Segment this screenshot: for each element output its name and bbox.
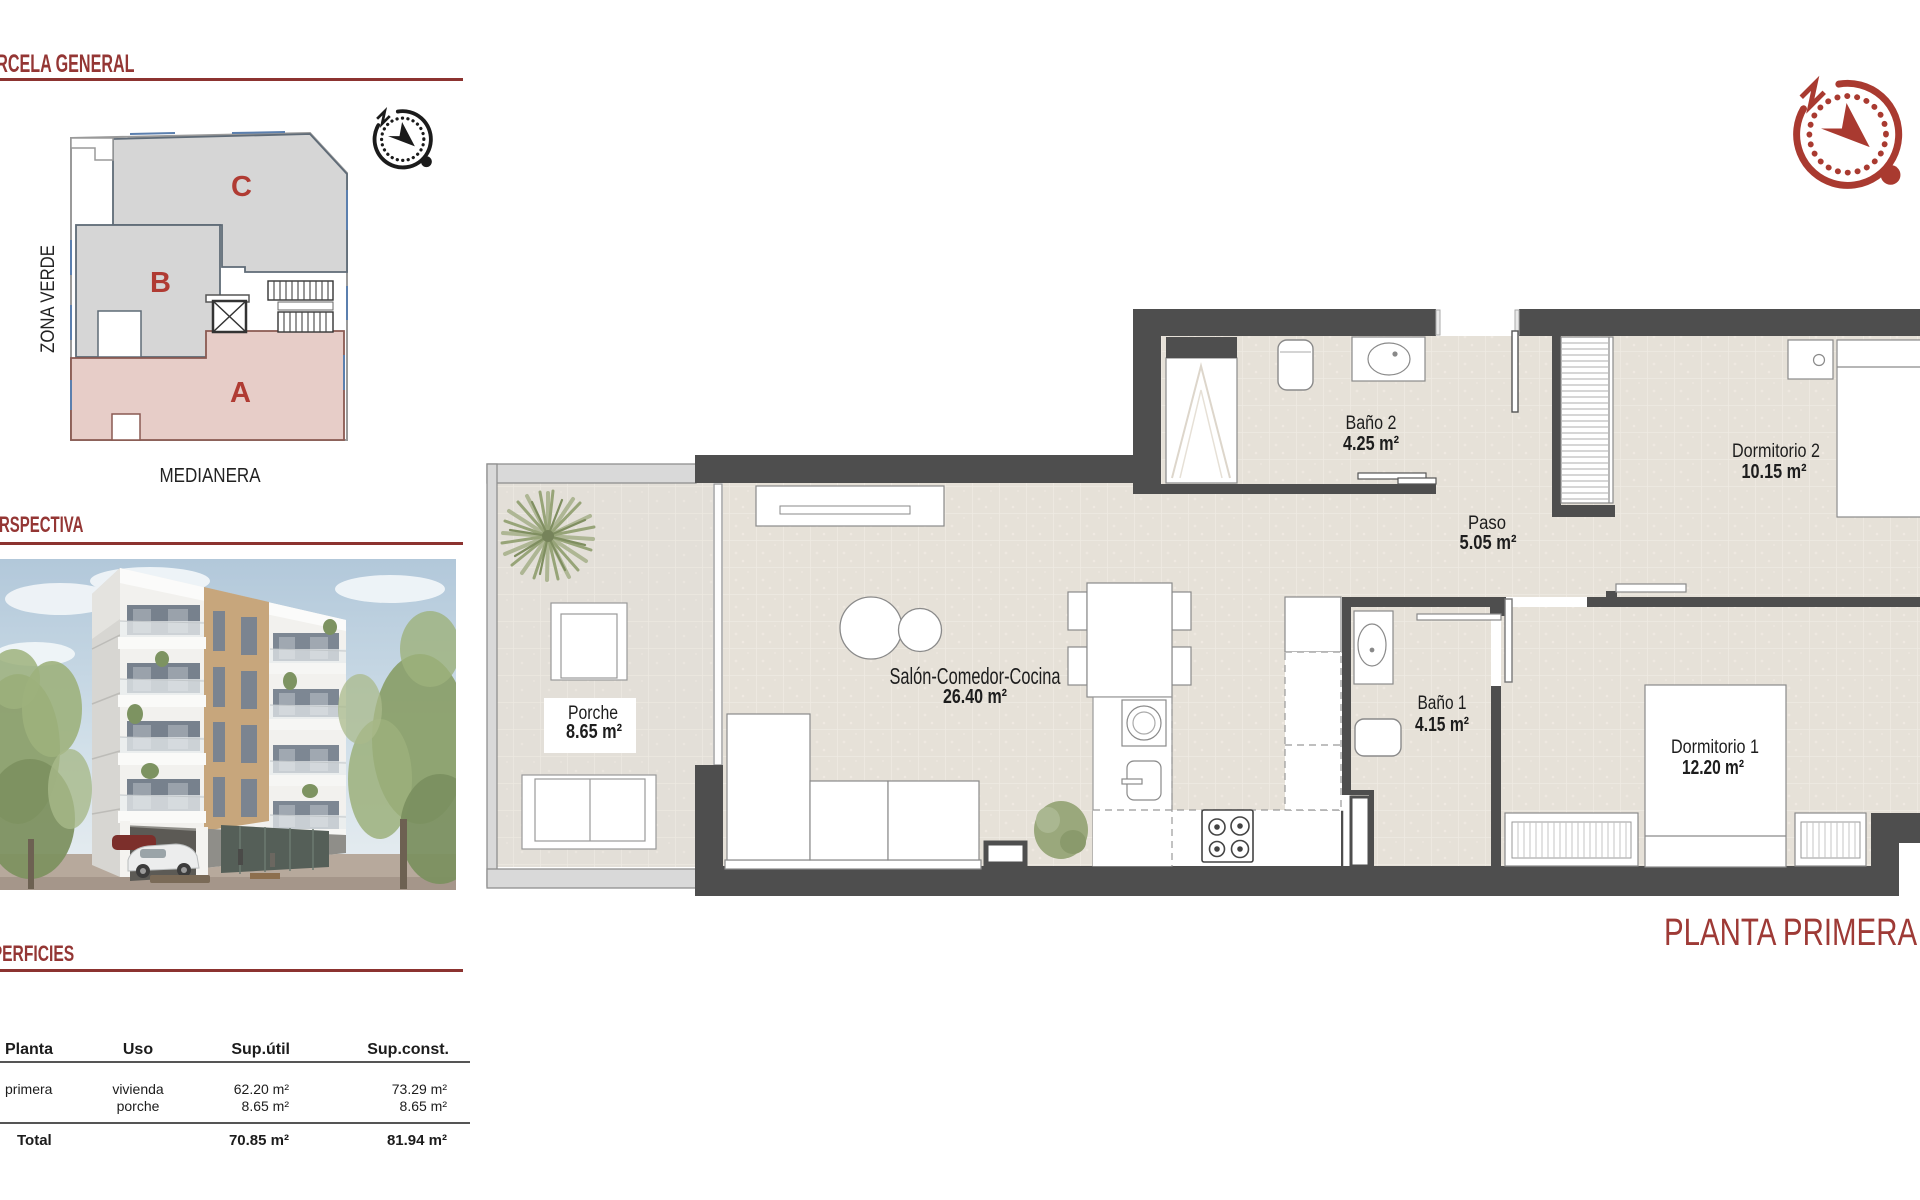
- svg-text:Baño 1: Baño 1: [1418, 693, 1467, 714]
- svg-text:26.40 m²: 26.40 m²: [943, 686, 1007, 708]
- svg-text:C: C: [231, 171, 252, 203]
- svg-text:4.25 m²: 4.25 m²: [1343, 433, 1399, 455]
- svg-text:12.20 m²: 12.20 m²: [1682, 757, 1744, 779]
- svg-text:4.15 m²: 4.15 m²: [1415, 714, 1469, 736]
- svg-text:Baño 2: Baño 2: [1346, 413, 1397, 434]
- svg-text:5.05 m²: 5.05 m²: [1460, 532, 1517, 554]
- svg-text:10.15 m²: 10.15 m²: [1742, 461, 1807, 483]
- svg-text:A: A: [230, 377, 251, 409]
- svg-text:Dormitorio 1: Dormitorio 1: [1671, 737, 1759, 758]
- svg-text:8.65 m²: 8.65 m²: [566, 721, 622, 743]
- svg-text:Paso: Paso: [1468, 513, 1506, 534]
- svg-text:B: B: [150, 267, 171, 299]
- svg-text:Dormitorio 2: Dormitorio 2: [1732, 441, 1820, 462]
